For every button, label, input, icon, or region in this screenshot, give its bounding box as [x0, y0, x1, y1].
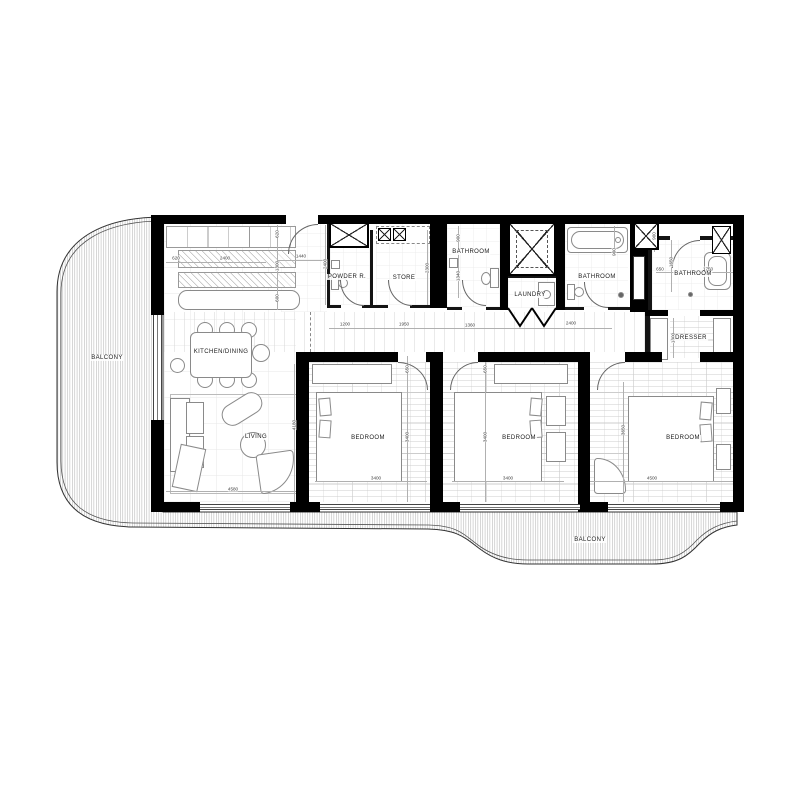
kitchen-counter	[178, 250, 296, 268]
corridor-boundary-dashed-line	[310, 312, 311, 352]
nightstand	[716, 444, 731, 470]
bath2-bottom-wall	[608, 307, 630, 310]
bedroom3-top-wall	[625, 352, 662, 362]
bedroom2-wardrobe	[494, 364, 568, 384]
bedroom2-bed	[454, 392, 542, 482]
bedroom1-top-wall	[426, 352, 443, 362]
stool	[170, 358, 185, 373]
duct-box	[712, 226, 731, 254]
nightstand	[546, 396, 566, 426]
bedroom3-top-wall	[700, 352, 733, 362]
pillow	[529, 420, 542, 439]
store-bottom-wall	[410, 305, 430, 308]
dim-line	[325, 225, 326, 305]
bedroom1-top-wall	[309, 352, 398, 362]
pillow	[318, 398, 332, 417]
washing-machine-drum	[542, 290, 551, 299]
living-window	[200, 504, 290, 510]
shaft-small	[633, 222, 659, 250]
living-left-window	[153, 315, 162, 420]
dim-line	[656, 272, 734, 273]
bathtub-drain	[615, 237, 621, 243]
right-wall	[733, 215, 744, 512]
powder-sink	[331, 260, 340, 269]
store-bath1-wall	[430, 224, 447, 308]
bottom-wall-pier	[720, 502, 744, 512]
bedroom2-top-wall	[478, 352, 578, 362]
dim-line	[614, 226, 615, 256]
bath2-bottom-wall	[565, 307, 584, 310]
left-wall-lower	[151, 420, 164, 510]
bath3-dresser-door-gap	[668, 310, 700, 316]
powder-store-wall	[370, 230, 373, 308]
sofa-cushion	[186, 402, 204, 434]
dim-line	[315, 481, 427, 482]
dim-line	[277, 260, 325, 261]
dim-line	[485, 356, 486, 502]
store-shelf-box	[378, 228, 391, 241]
dim-line	[294, 364, 295, 502]
nightstand	[716, 388, 731, 414]
bedroom1-bedroom2-wall	[430, 352, 443, 512]
pillow	[699, 402, 713, 421]
bath1-bottom-wall	[447, 307, 462, 310]
laundry-double-door	[506, 306, 558, 328]
dim-line	[585, 481, 733, 482]
dim-line	[166, 491, 296, 492]
shower-fitting-icon	[688, 292, 693, 297]
shaft-main-inner	[516, 230, 548, 268]
kitchen-island	[178, 290, 300, 310]
dim-line	[673, 318, 674, 358]
dim-line	[329, 328, 612, 329]
toilet-tank	[490, 268, 499, 288]
bedroom1-wardrobe	[312, 364, 392, 384]
wall-niche	[633, 256, 645, 300]
dim-line	[458, 226, 459, 298]
top-wall-left	[163, 215, 286, 224]
bedroom2-window	[460, 504, 580, 510]
shower-head-icon	[618, 292, 624, 298]
bath1-right-wall	[500, 224, 508, 310]
dining-chair	[252, 344, 270, 362]
dim-line	[452, 481, 564, 482]
store-bottom-wall	[373, 305, 388, 308]
bedroom2-bedroom3-wall	[578, 352, 590, 512]
dining-table	[190, 332, 252, 378]
bedroom3-window	[608, 504, 720, 510]
nightstand	[546, 432, 566, 462]
bedroom1-window	[320, 504, 430, 510]
powder-bottom-wall	[327, 305, 341, 308]
kitchen-counter-2	[178, 272, 296, 288]
store-shelf-box	[393, 228, 406, 241]
bottom-wall-pier	[151, 502, 200, 512]
pillow	[318, 420, 331, 439]
dim-line	[166, 262, 266, 263]
floor-plan-canvas: BALCONYKITCHEN/DININGLIVINGPOWDER R.STOR…	[0, 0, 800, 800]
dresser-left-wall	[645, 316, 650, 356]
laundry-bath2-wall	[556, 224, 565, 310]
dim-line	[277, 225, 278, 310]
bathroom1-sink	[449, 258, 458, 268]
bathroom3-tub-inner	[708, 256, 727, 286]
dim-line	[623, 382, 624, 502]
left-wall-upper	[151, 215, 164, 315]
dim-line	[427, 230, 428, 306]
shaft-powder	[329, 222, 369, 248]
pillow	[699, 424, 712, 443]
shaft-laundry-wall	[508, 276, 556, 278]
toilet-bowl	[574, 287, 584, 297]
living-bedroom1-wall	[296, 352, 309, 512]
pillow	[529, 398, 543, 417]
